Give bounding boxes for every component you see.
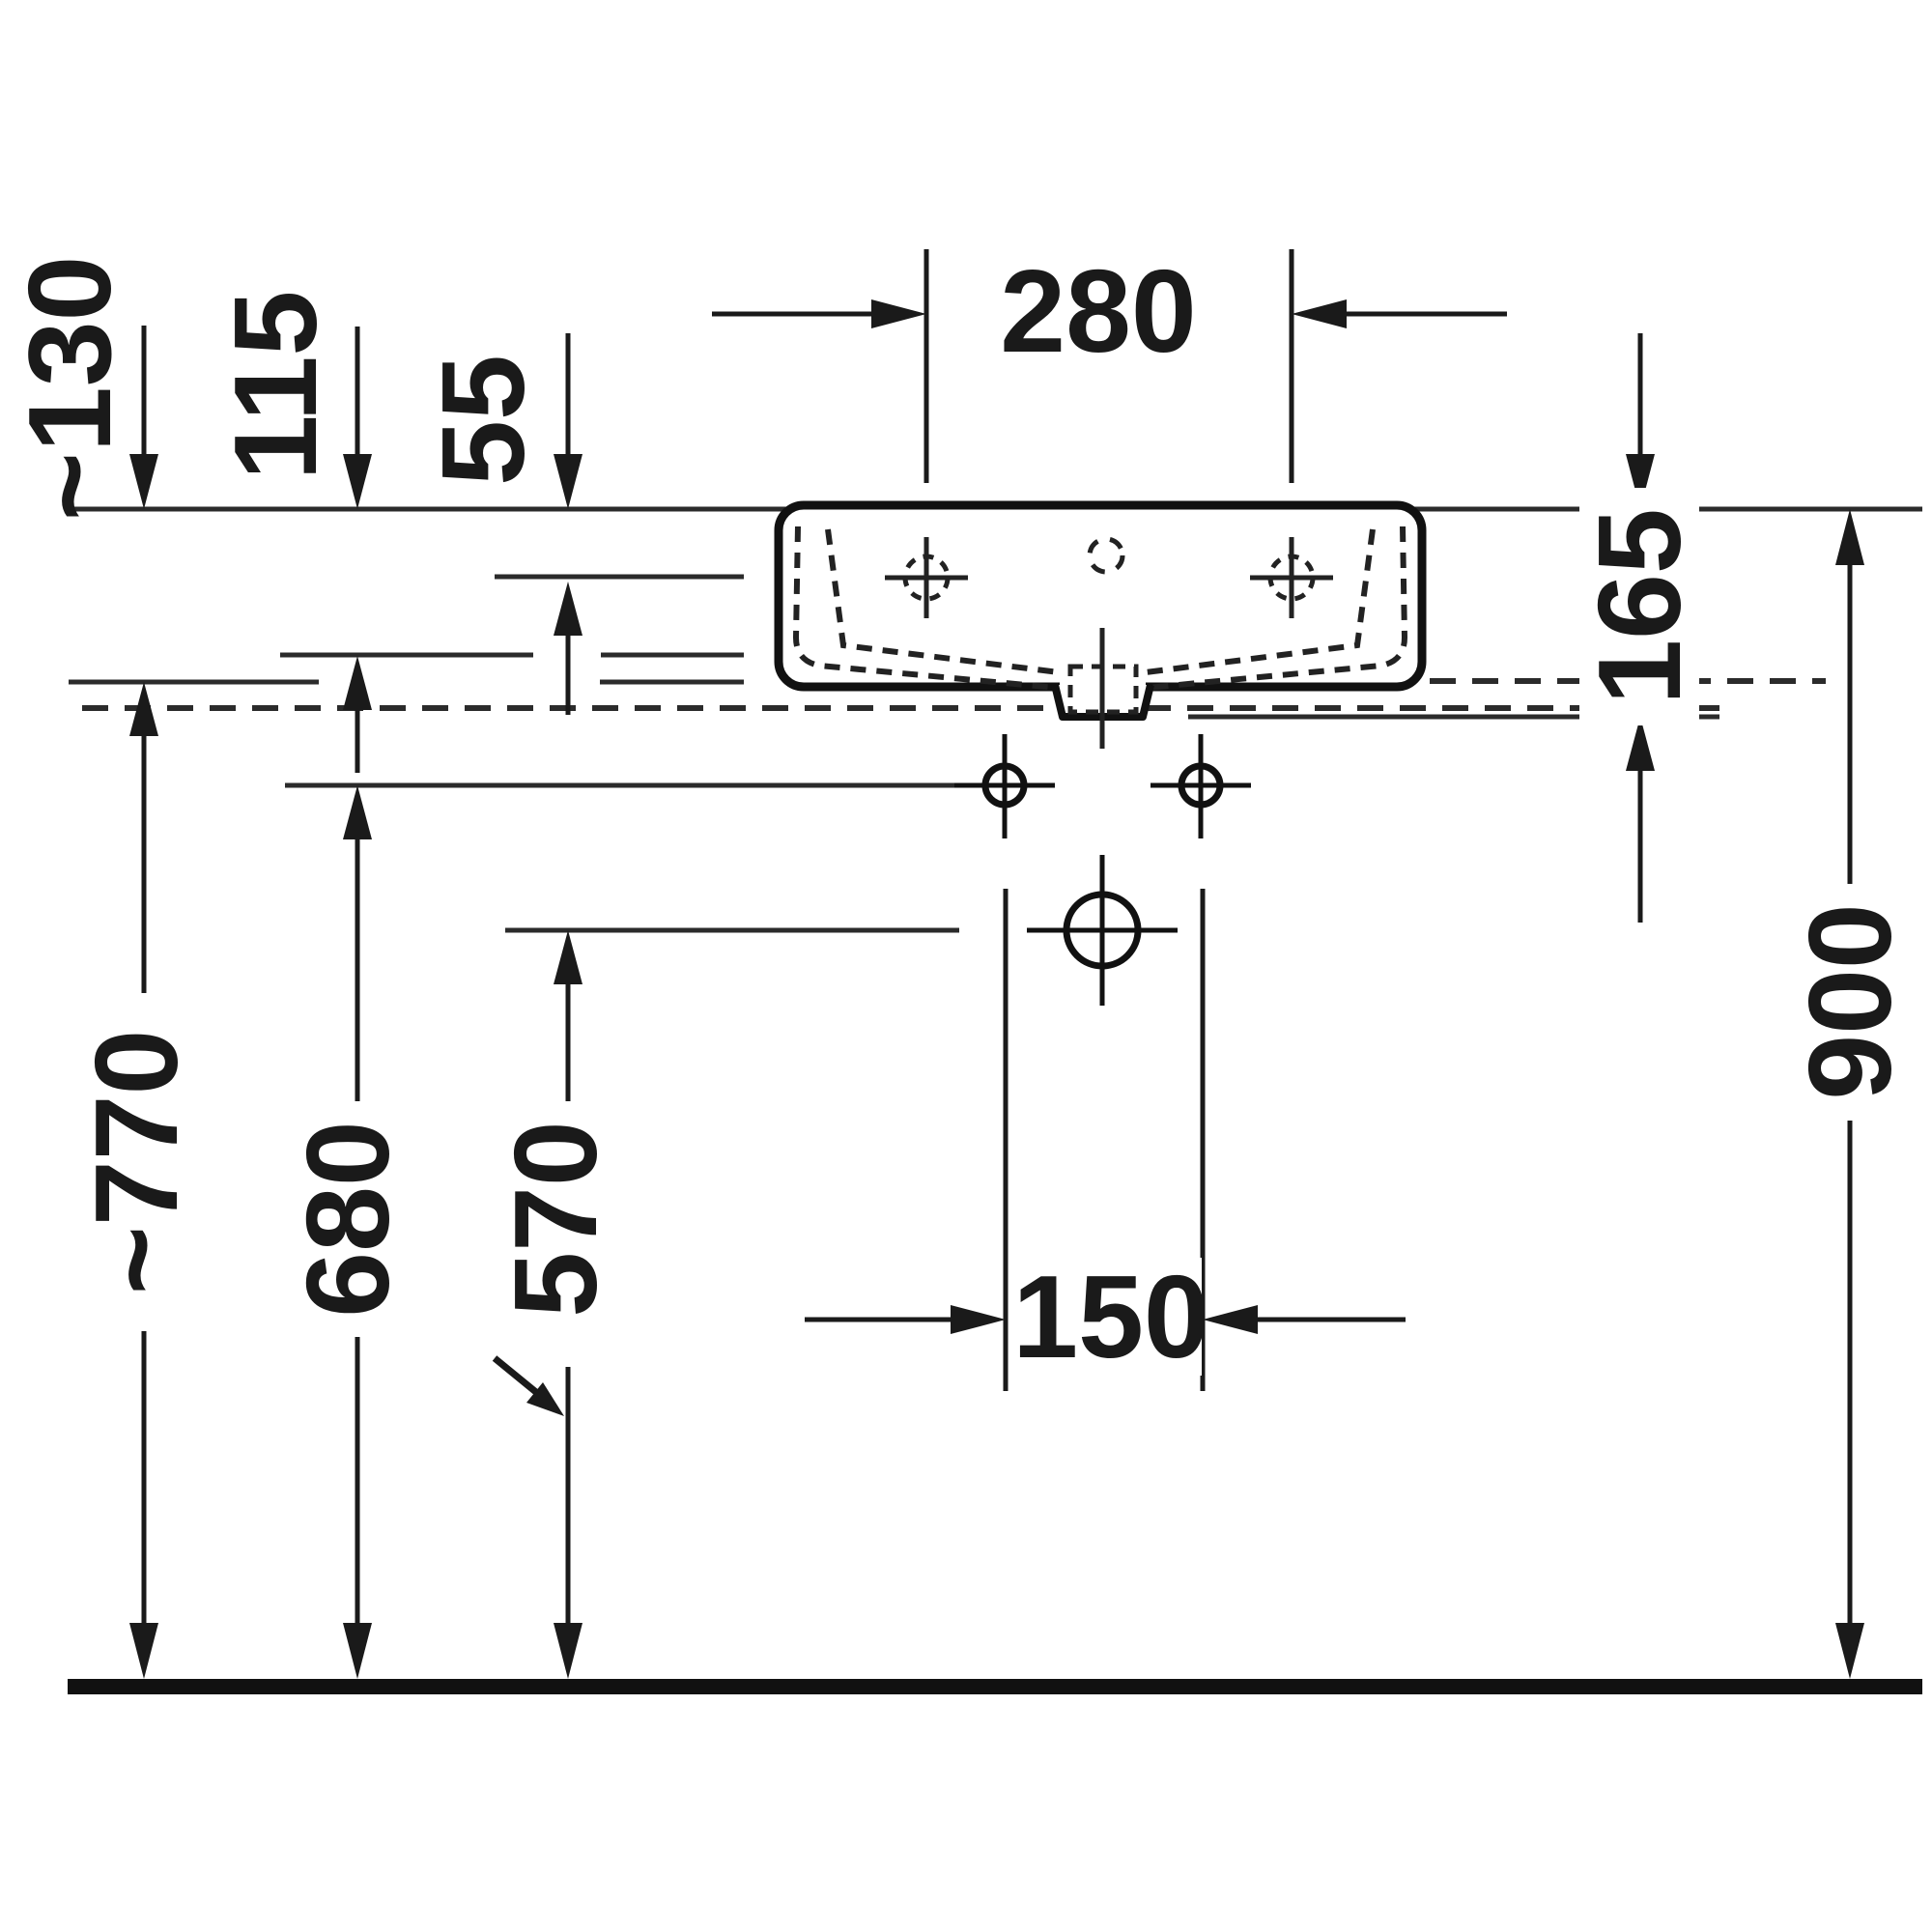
dim-130-label: ~130 [4,256,135,522]
dim-165-label: 165 [1574,508,1705,705]
dimension-labels: ~130 115 55 280 165 ~770 680 570 150 900 [4,245,1916,1382]
dim-55-arrowhead-down [554,454,582,509]
fixing-holes [954,734,1251,838]
dim-570-arrowhead-down [554,1623,582,1679]
dim-570-arrowhead-up [554,930,582,984]
floor-line [68,1679,1922,1694]
dim-680-label: 680 [282,1121,413,1318]
dim-55-arrowhead-up [554,582,582,636]
dim-150-arrowhead-right [1203,1305,1258,1334]
dim-900-label: 900 [1784,903,1916,1100]
basin [779,505,1422,749]
dim-570-leader-shaft [495,1358,537,1393]
dim-280-label: 280 [1000,245,1197,377]
dim-770-label: ~770 [71,1030,202,1295]
dim-570-label: 570 [490,1121,621,1318]
dim-115-arrowhead-down [343,454,372,509]
dim-115-arrowhead-up [343,656,372,710]
dim-115-label: 115 [210,291,341,481]
siphon [1027,855,1178,1006]
dim-680-arrowhead-down [343,1623,372,1679]
dim-900-arrowhead-up [1835,509,1864,565]
dim-280-arrowhead-left [871,299,926,328]
dim-280-arrowhead-right [1292,299,1347,328]
dim-680-arrowhead-up [343,785,372,839]
dim-55-label: 55 [417,355,549,486]
dim-770-arrowhead-down [129,1623,158,1679]
washbasin-dimension-diagram: ~130 115 55 280 165 ~770 680 570 150 900 [0,0,1932,1932]
dim-900-arrowhead-down [1835,1623,1864,1679]
dim-150-arrowhead-left [951,1305,1006,1334]
dim-150-label: 150 [1012,1251,1209,1382]
